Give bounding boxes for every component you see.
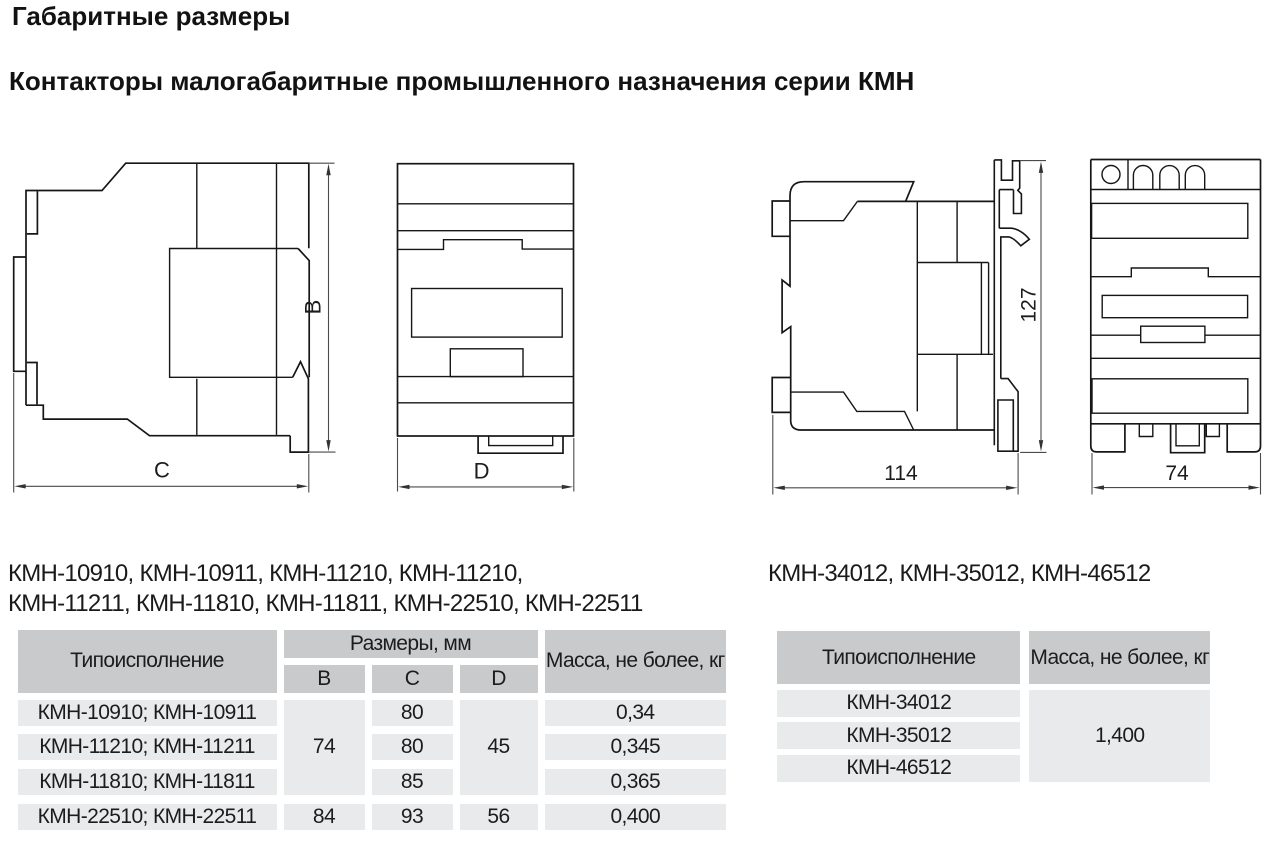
svg-text:74: 74	[1165, 462, 1189, 485]
svg-text:D: D	[474, 459, 490, 484]
svg-text:B: B	[301, 300, 326, 315]
svg-text:C: C	[154, 458, 170, 483]
svg-text:114: 114	[884, 462, 918, 485]
svg-text:127: 127	[1018, 287, 1041, 322]
